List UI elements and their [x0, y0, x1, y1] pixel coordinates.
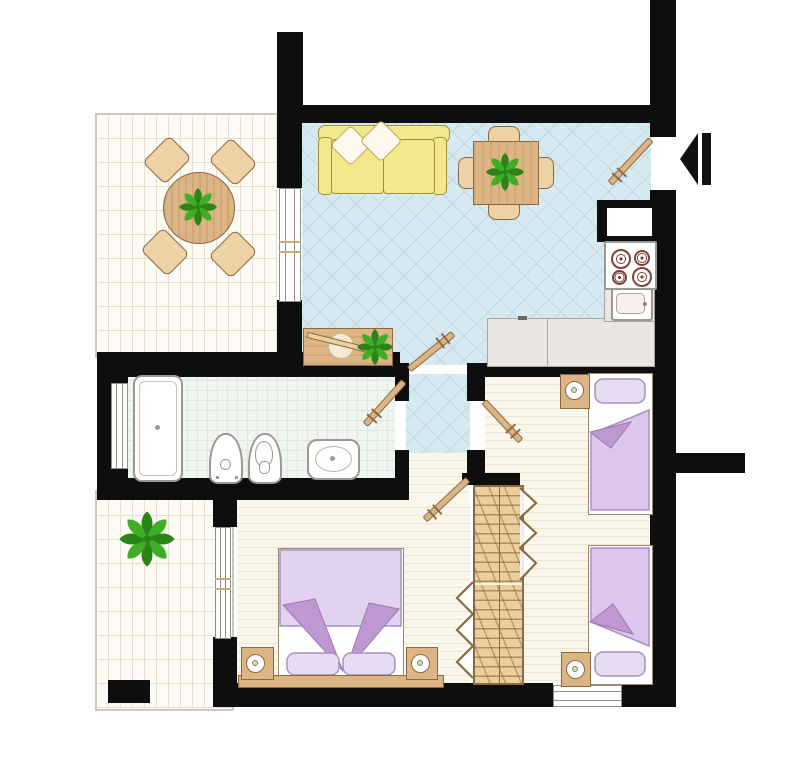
window-terrace-living	[279, 188, 301, 302]
toilet-outlet	[259, 461, 270, 474]
nightstand	[241, 647, 274, 680]
bathtub	[133, 375, 183, 482]
wardrobe-folding-door-left	[454, 581, 474, 681]
potted-plant-icon	[118, 510, 176, 568]
wall-bedroom-balcony-lower	[213, 637, 237, 683]
single-bed	[588, 373, 653, 515]
wall-terrace-living-upper	[277, 123, 302, 188]
table-lamp	[246, 654, 265, 673]
counter-handle	[518, 316, 527, 320]
stove-burner	[612, 270, 627, 285]
wall-right-stub-out	[676, 453, 745, 473]
table-lamp	[411, 654, 430, 673]
washbasin	[307, 439, 360, 480]
potted-plant-icon	[485, 152, 525, 192]
wall-balcony-corner	[108, 680, 150, 703]
stove-burner	[634, 250, 650, 266]
floor-plan-canvas	[0, 0, 810, 768]
stove-burner	[632, 267, 652, 287]
wall-hall-jamb-sw	[395, 450, 409, 478]
wardrobe-divider	[499, 487, 501, 683]
wall-right-lower	[650, 473, 676, 707]
wardrobe-folding-door-right	[519, 487, 539, 585]
nightstand	[561, 652, 591, 687]
wardrobe	[473, 485, 524, 685]
potted-plant-icon	[178, 187, 218, 227]
sink-basin	[616, 293, 645, 314]
stove	[604, 241, 657, 290]
table-lamp	[565, 381, 584, 400]
wardrobe-top-wall	[462, 473, 520, 485]
entrance-arrow-bar	[702, 133, 711, 185]
master-doorway-floor	[409, 453, 469, 500]
kitchen-sink	[611, 288, 653, 321]
wall-bottom-right-corner	[620, 683, 676, 707]
wall-terrace-living-lower	[277, 300, 302, 354]
sofa	[318, 125, 448, 195]
single-bed	[588, 545, 653, 685]
single-bed-linens	[589, 546, 652, 684]
window-bathroom	[111, 383, 128, 469]
bathtub-drain	[155, 425, 160, 430]
wall-top	[277, 105, 676, 123]
kitchen-counter	[487, 318, 655, 367]
wall-bedroom-balcony-upper	[213, 485, 237, 527]
wall-right-above-entrance	[650, 123, 676, 137]
nightstand	[406, 647, 438, 680]
potted-plant-icon	[356, 328, 394, 366]
counter-divider	[547, 319, 548, 366]
stove-burner	[611, 249, 631, 269]
table-lamp	[566, 660, 585, 679]
window-bedroom-balcony	[215, 527, 231, 639]
entrance-arrow-icon	[680, 133, 698, 185]
wardrobe-shelf-line	[475, 583, 522, 585]
washbasin-drain	[330, 456, 335, 461]
window-bottom	[553, 685, 622, 707]
double-bed-linens	[279, 549, 403, 679]
single-bed-linens	[589, 374, 652, 514]
double-bed	[278, 548, 404, 680]
hallway-floor	[406, 374, 470, 453]
wall-hall-jamb-ne	[467, 363, 485, 401]
nightstand	[560, 374, 590, 409]
bidet-detail	[216, 476, 238, 479]
bidet-faucet	[220, 459, 231, 470]
sink-drain	[643, 302, 647, 306]
wall-balcony-top	[97, 485, 217, 500]
wall-niche-opening	[607, 208, 652, 236]
